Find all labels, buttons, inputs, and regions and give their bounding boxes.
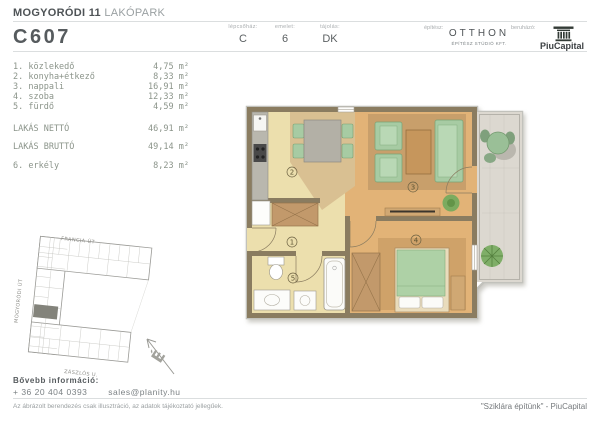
highlighted-unit <box>33 304 58 319</box>
project-title-light: LAKÓPARK <box>104 7 165 19</box>
room-number-2: 2 <box>290 169 294 177</box>
room-row: 5. fürdő 4,59 m² <box>13 102 189 112</box>
gross-area-label: LAKÁS BRUTTÓ <box>13 142 74 152</box>
washing-machine <box>294 291 316 310</box>
coffee-table <box>406 130 431 174</box>
toilet <box>270 265 283 280</box>
balcony-area-value: 8,23 m² <box>153 161 189 171</box>
room-row: 1. közlekedő 4,75 m² <box>13 62 189 72</box>
room-name: 2. konyha+étkező <box>13 72 95 82</box>
net-area-row: LAKÁS NETTÓ 46,91 m² <box>13 124 189 134</box>
footer-contact: + 36 20 404 0393 sales@planity.hu <box>13 387 181 397</box>
room-list: 1. közlekedő 4,75 m² 2. konyha+étkező 8,… <box>13 62 189 171</box>
tv <box>390 211 435 213</box>
room-name: 1. közlekedő <box>13 62 74 72</box>
north-compass: É <box>132 326 188 382</box>
balcony-area-label: 6. erkély <box>13 161 59 171</box>
kitchen-counter <box>252 112 268 200</box>
architect-subtitle: ÉPÍTÉSZ STÚDIÓ KFT. <box>444 41 514 46</box>
bedroom-furniture <box>352 248 465 312</box>
header-divider-bottom <box>13 51 587 52</box>
info-floor-value: 6 <box>263 33 307 45</box>
developer-label: beruházó: <box>511 25 535 31</box>
net-area-value: 46,91 m² <box>148 124 189 134</box>
bathtub <box>324 258 345 310</box>
info-floor: emelet: 6 <box>263 24 307 45</box>
info-orientation-value: DK <box>308 33 352 45</box>
room-number-5: 5 <box>291 275 295 283</box>
architect-name: OTTHON <box>448 28 510 39</box>
footer-disclaimer: Az ábrázolt berendezés csak illusztráció… <box>13 403 223 410</box>
stove <box>254 144 267 162</box>
room-number-3: 3 <box>411 184 415 192</box>
fridge <box>252 201 270 225</box>
footer-divider <box>13 398 587 399</box>
info-staircase-label: lépcsőház: <box>221 24 265 30</box>
info-orientation: tájolás: DK <box>308 24 352 45</box>
room-row: 4. szoba 12,33 m² <box>13 92 189 102</box>
pillow <box>399 297 420 308</box>
floorplan-sheet: MOGYORÓDI 11 LAKÓPARK C607 lépcsőház: C … <box>0 0 600 424</box>
header-divider-top <box>13 21 587 22</box>
email-address: sales@planity.hu <box>108 387 180 397</box>
gross-area-row: LAKÁS BRUTTÓ 49,14 m² <box>13 142 189 152</box>
balcony-area-row: 6. erkély 8,23 m² <box>13 161 189 171</box>
unit-code: C607 <box>13 26 71 49</box>
net-area-label: LAKÁS NETTÓ <box>13 124 69 134</box>
room-name: 3. nappali <box>13 82 64 92</box>
hall-wardrobe <box>272 203 318 226</box>
street-left-label: MOGYORÓDI ÚT <box>13 278 25 323</box>
floor-plan: 1 2 3 4 5 <box>238 98 538 333</box>
info-staircase-value: C <box>221 33 265 45</box>
bedside-cabinet <box>451 276 465 310</box>
room-area: 12,33 m² <box>148 92 189 102</box>
architect-label: építész: <box>424 25 443 31</box>
info-staircase: lépcsőház: C <box>221 24 265 45</box>
room-area: 8,33 m² <box>153 72 189 82</box>
room-area: 4,75 m² <box>153 62 189 72</box>
room-area: 16,91 m² <box>148 82 189 92</box>
footer-info-label: Bővebb információ: <box>13 376 99 385</box>
balcony-table <box>487 132 509 154</box>
balcony-chair <box>484 153 496 163</box>
info-orientation-label: tájolás: <box>308 24 352 30</box>
room-name: 5. fürdő <box>13 102 54 112</box>
balcony-plant <box>481 245 503 267</box>
project-title-bold: MOGYORÓDI 11 <box>13 7 101 19</box>
vanity <box>254 290 290 310</box>
developer-name: PiuCapital <box>528 41 596 51</box>
phone-number: + 36 20 404 0393 <box>13 387 87 397</box>
room-number-4: 4 <box>414 237 419 245</box>
room-area: 4,59 m² <box>153 102 189 112</box>
project-title: MOGYORÓDI 11 LAKÓPARK <box>13 7 165 19</box>
room-row: 3. nappali 16,91 m² <box>13 82 189 92</box>
gross-area-value: 49,14 m² <box>148 142 189 152</box>
room-row: 2. konyha+étkező 8,33 m² <box>13 72 189 82</box>
dining-table <box>304 120 341 162</box>
info-floor-label: emelet: <box>263 24 307 30</box>
room-number-1: 1 <box>290 239 294 247</box>
footer-slogan: "Sziklára építünk" - PiuCapital <box>481 402 587 411</box>
pillow <box>422 297 443 308</box>
room-name: 4. szoba <box>13 92 54 102</box>
